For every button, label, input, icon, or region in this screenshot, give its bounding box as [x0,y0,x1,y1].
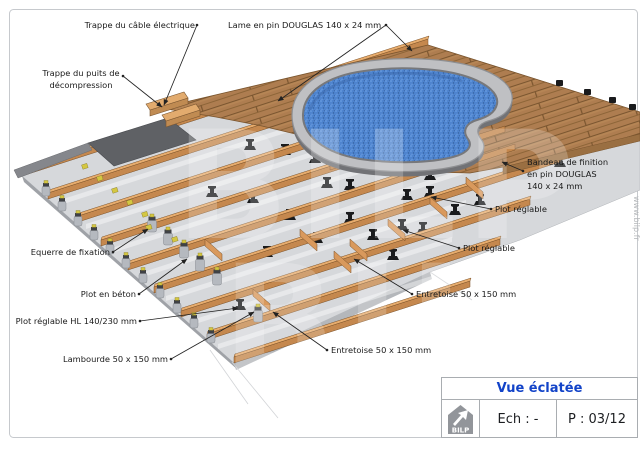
label-bandeau-2: en pin DOUGLAS [527,169,597,179]
title-block: Vue éclatée BILP Ech : - P : 03/12 [441,377,638,438]
label-lambourde: Lambourde 50 x 150 mm [63,354,168,364]
label-lame: Lame en pin DOUGLAS 140 x 24 mm [228,20,381,30]
scale-field: Ech : - [480,400,557,438]
label-plot-reglable-1: Plot réglable [495,204,547,214]
label-trappe-cable: Trappe du câble électrique [84,20,195,30]
label-trappe-puits-1: Trappe du puits de [41,68,119,78]
label-plot-reglable-2: Plot réglable [463,243,515,253]
label-entretoise-bottom: Entretoise 50 x 150 mm [331,345,431,355]
bilp-logo-text: BILP [452,426,470,434]
label-plot-hl: Plot réglable HL 140/230 mm [16,316,137,326]
label-entretoise-right: Entretoise 50 x 150 mm [416,289,516,299]
label-equerre: Equerre de fixation [31,247,110,257]
bilp-logo: BILP [442,400,480,438]
label-bandeau-1: Bandeau de finition [527,157,608,167]
watermark-side: www.bilp.fr [632,196,640,241]
label-plot-beton: Plot en béton [81,289,136,299]
label-bandeau-3: 140 x 24 mm [527,181,582,191]
bilp-logo-icon: BILP [447,404,474,435]
label-trappe-puits-2: décompression [50,80,113,90]
page-number-field: P : 03/12 [557,400,637,438]
watermark: BILP BILP www.bilp.fr [175,100,640,408]
drawing-title: Vue éclatée [442,378,637,400]
drawing-page: BILP BILP www.bilp.fr Trappe du câble él… [0,0,640,452]
